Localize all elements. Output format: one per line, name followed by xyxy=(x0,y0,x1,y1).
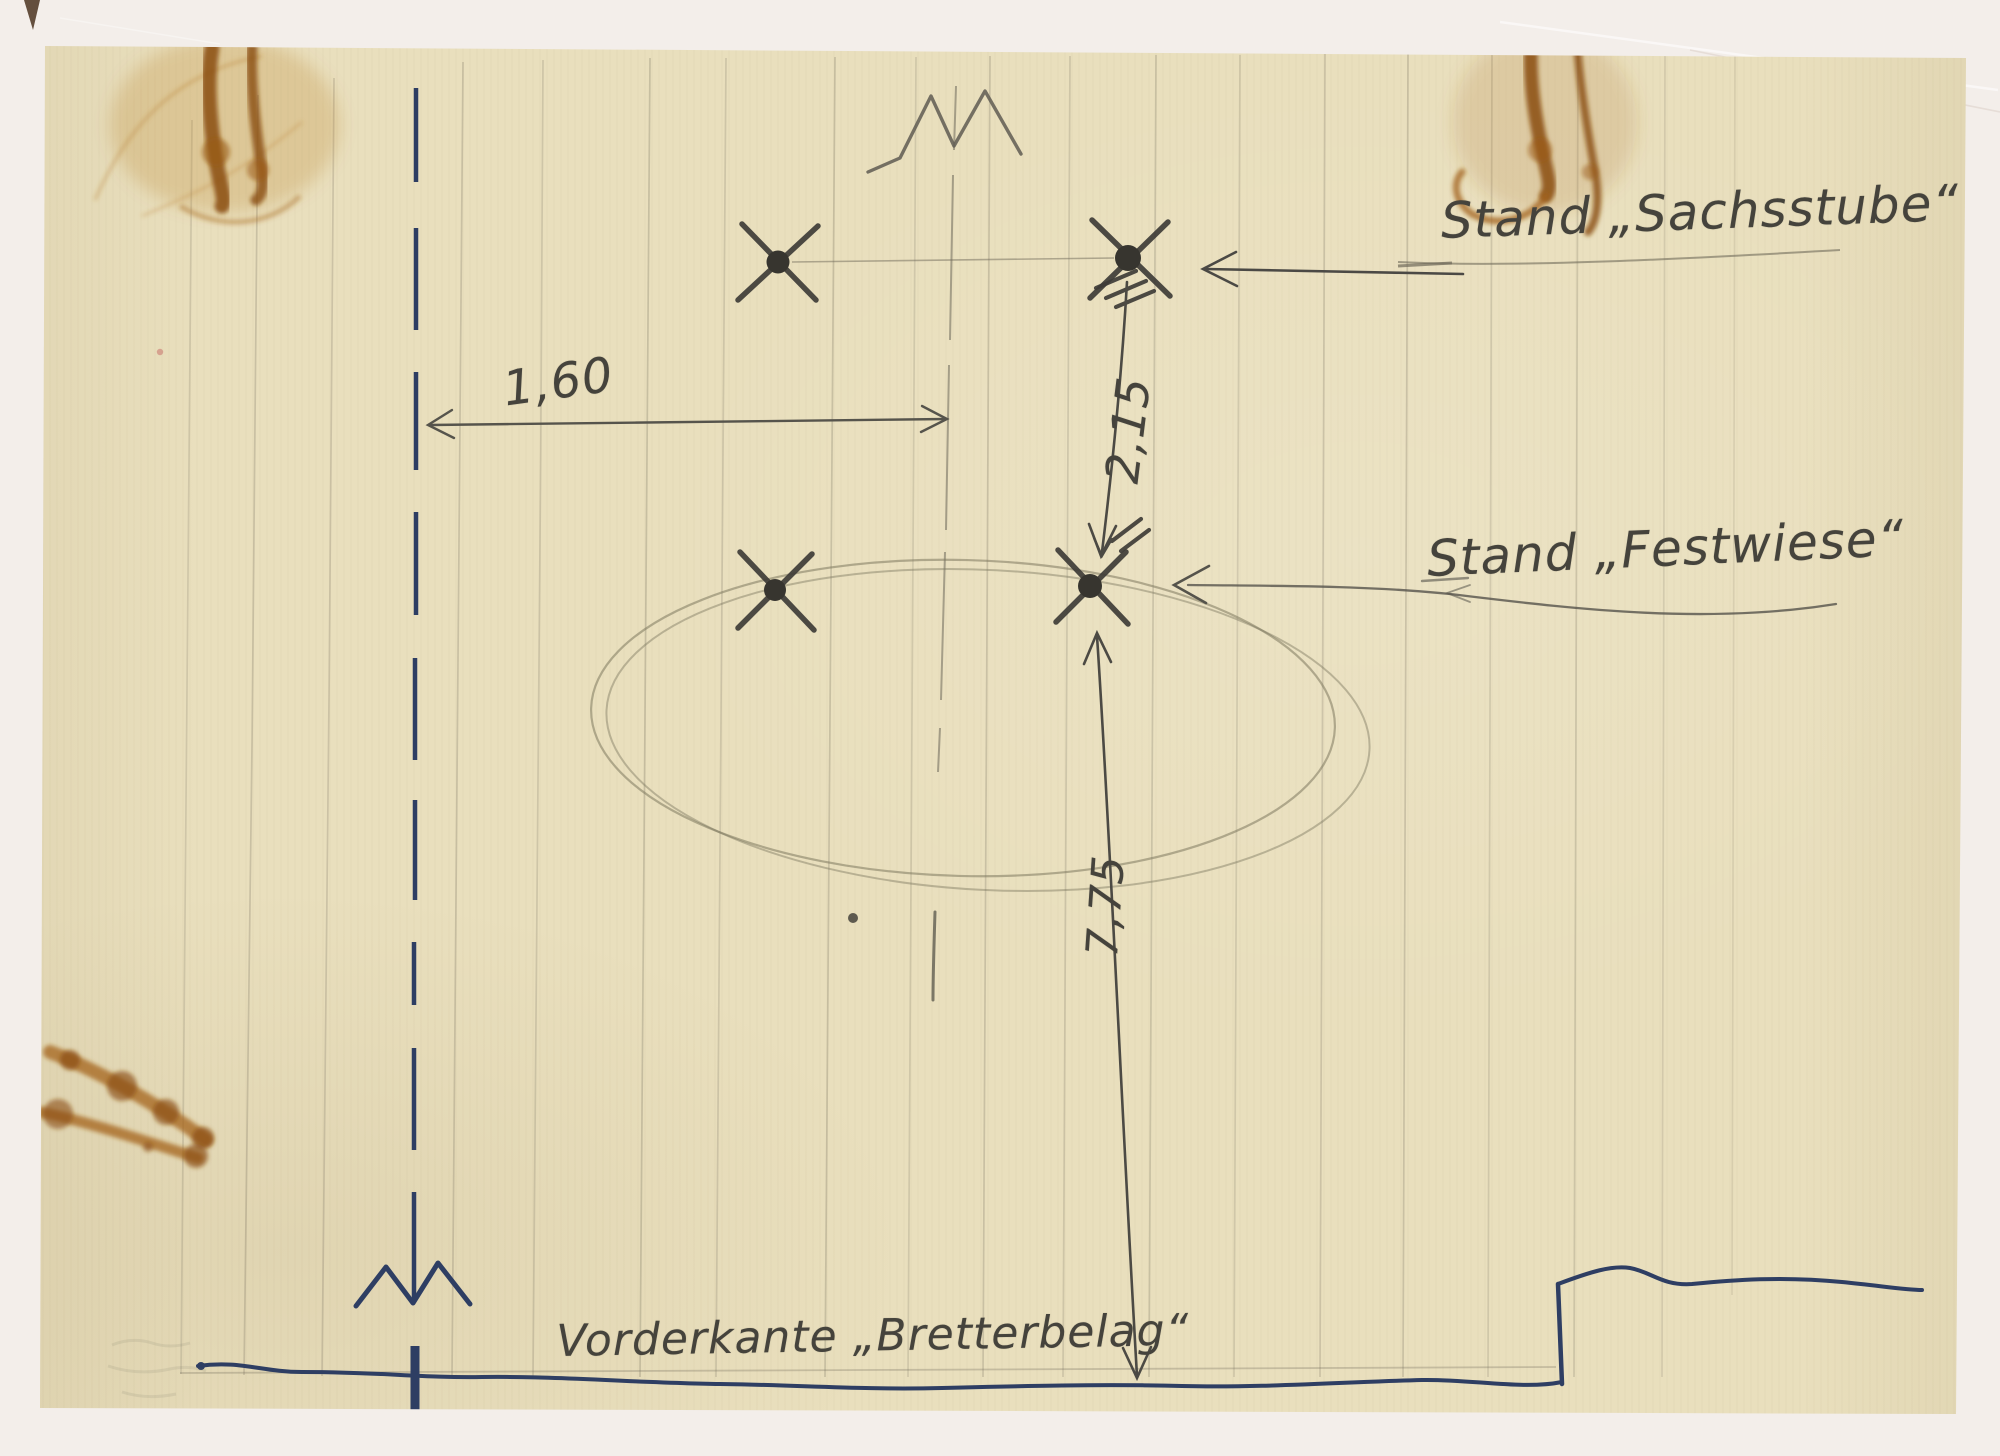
corner-slit xyxy=(24,0,40,30)
ghost-pencil-marks xyxy=(108,1340,206,1396)
stain-top-left xyxy=(95,37,340,222)
small-red-speck xyxy=(157,349,163,355)
mat-crease xyxy=(60,18,220,44)
blue-dashed-centerline xyxy=(414,88,416,1412)
dimension-label-7-75: 7,75 xyxy=(1077,853,1135,958)
label-vorderkante-bretterbelag: Vorderkante „Bretterbelag“ xyxy=(556,1309,1190,1364)
paper-sheet: Stand „Sachsstube“ Stand „Festwiese“ Vor… xyxy=(0,0,2000,1456)
sachsstube-underline xyxy=(1398,250,1840,266)
cross-mark-festwiese-left xyxy=(738,552,814,630)
scanned-stage-sketch: Stand „Sachsstube“ Stand „Festwiese“ Vor… xyxy=(0,0,2000,1456)
dimension-line-7-75 xyxy=(1084,633,1151,1378)
dimension-label-1-60: 1,60 xyxy=(500,351,616,414)
cross-mark-sachsstube-right xyxy=(1090,220,1170,307)
center-axis-line xyxy=(848,86,956,1000)
ellipse-sketch xyxy=(587,550,1378,910)
sachsstube-arrow xyxy=(1203,252,1463,286)
bottom-pencil-edge-line xyxy=(180,1367,1556,1373)
crossbar-line xyxy=(792,258,1114,262)
cross-mark-festwiese-right xyxy=(1056,519,1149,624)
stain-bottom-left xyxy=(40,1050,214,1168)
top-center-mark xyxy=(868,91,1021,172)
